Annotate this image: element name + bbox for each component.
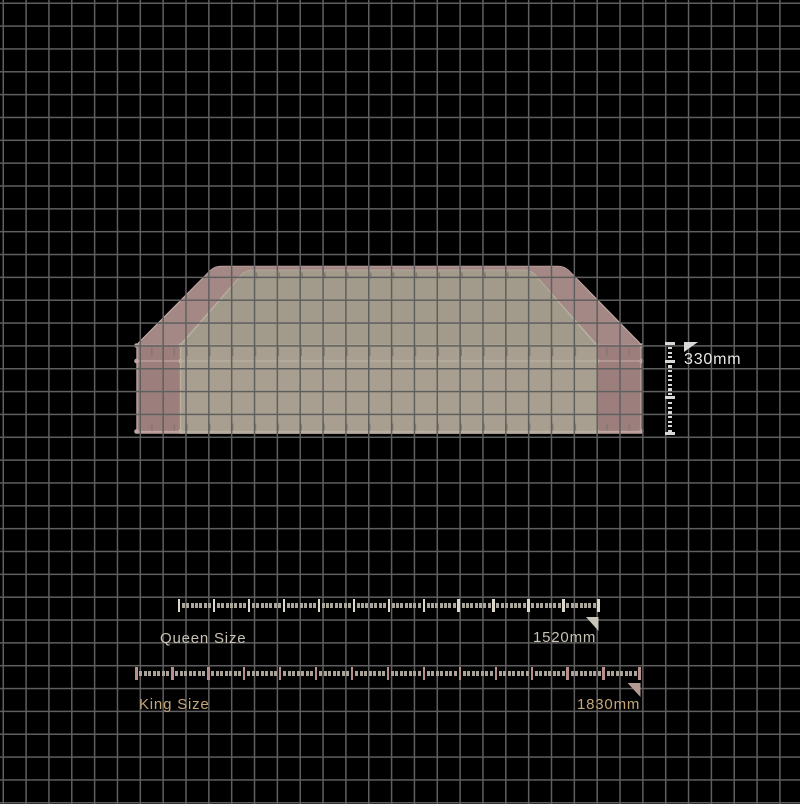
- queen-size-label: Queen Size: [160, 630, 246, 647]
- king-width-value-label: 1830mm: [577, 696, 640, 713]
- diagram-canvas: 330mm Queen Size 1520mm King Size 1830mm: [0, 0, 800, 804]
- king-size-label: King Size: [139, 696, 210, 713]
- height-value-label: 330mm: [684, 351, 741, 369]
- queen-width-value-label: 1520mm: [533, 629, 596, 646]
- dimension-annotations: 330mm Queen Size 1520mm King Size 1830mm: [0, 0, 800, 804]
- king-dimension-flag-icon: [628, 683, 641, 697]
